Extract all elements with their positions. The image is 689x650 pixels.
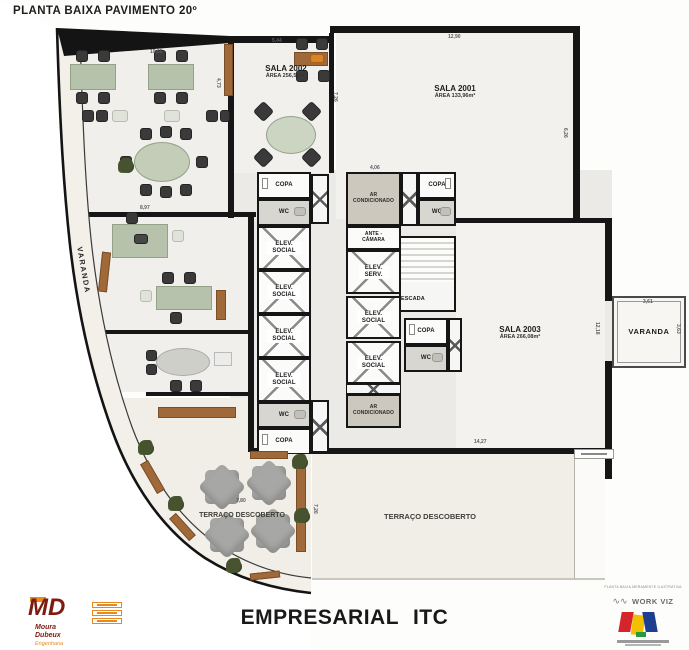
contact-line <box>92 610 122 616</box>
chair <box>316 38 328 50</box>
room-name: SALA 2003 <box>455 325 585 334</box>
plant <box>168 496 183 511</box>
table <box>156 348 210 376</box>
bench <box>250 451 288 459</box>
room-label: AR CONDICIONADO <box>351 405 397 417</box>
parasol <box>205 470 239 504</box>
room-label: ESCADA <box>401 296 454 302</box>
elevator-social-2: ELEV. SOCIAL <box>257 270 311 314</box>
chair <box>126 212 138 224</box>
plant <box>226 558 241 573</box>
plant <box>138 440 153 455</box>
desk-accessory <box>310 54 324 63</box>
room-name: SALA 2001 <box>390 84 520 93</box>
sofa <box>112 110 128 122</box>
room-wc-3: WC <box>418 199 456 226</box>
toilet <box>440 207 451 216</box>
chair <box>206 110 218 122</box>
sink <box>445 178 451 189</box>
builder-logo <box>598 612 688 638</box>
room-area: ÁREA 256,59m² <box>240 73 332 79</box>
dimension: 14,27 <box>474 439 487 445</box>
room-label: WC <box>279 412 289 419</box>
terrace-left-label: TERRAÇO DESCOBERTO <box>190 512 294 519</box>
room-label: ELEV. SOCIAL <box>267 329 301 342</box>
computer <box>134 234 148 244</box>
room-copa-3: COPA <box>418 172 456 199</box>
chair <box>140 128 152 140</box>
wall <box>64 212 256 217</box>
chair <box>98 92 110 104</box>
note-line <box>581 453 607 455</box>
elevator-social-5: ELEV. SOCIAL <box>346 296 401 339</box>
room-copa-4: COPA <box>404 318 448 345</box>
contact-line <box>92 602 122 608</box>
cabinet <box>216 290 226 320</box>
room-label: VARANDA <box>628 328 669 337</box>
logo-name-1: Moura <box>35 624 56 632</box>
logo-name-3: Engenharia <box>35 641 63 647</box>
builder-caption-line <box>617 640 669 643</box>
room-escada: ESCADA <box>399 236 456 312</box>
contact-line <box>92 618 122 624</box>
dimension: 6,26 <box>562 128 568 138</box>
room-area: ÁREA 266,08m² <box>455 334 585 340</box>
squiggle-icon: ∿∿ <box>612 596 627 606</box>
parasol <box>256 514 290 548</box>
room-label: WC <box>421 355 431 362</box>
wall <box>452 218 612 223</box>
sideboard <box>158 407 236 418</box>
dimension: 12,18 <box>594 322 600 335</box>
sala-2003-label: SALA 2003 ÁREA 266,08m² <box>455 325 585 340</box>
terrace-right-label: TERRAÇO DESCOBERTO <box>340 512 520 521</box>
elevator-social-6: ELEV. SOCIAL <box>346 341 401 384</box>
chair <box>140 290 152 302</box>
chair <box>146 350 157 361</box>
duct-shaft <box>311 174 329 224</box>
room-wc-2: WC <box>257 402 311 428</box>
dimension: 8,97 <box>140 205 150 211</box>
bench <box>250 570 281 580</box>
sink <box>262 434 268 445</box>
room-ar-condicionado-2: AR CONDICIONADO <box>346 394 401 428</box>
dimension: 5,44 <box>272 38 282 44</box>
room-label: ELEV. SOCIAL <box>267 285 301 298</box>
chair <box>98 50 110 62</box>
room-label: ELEV. SERV. <box>359 265 389 278</box>
dimension: 12,90 <box>448 34 461 40</box>
chair <box>160 126 172 138</box>
chair <box>82 110 94 122</box>
sala-2002-label: SALA 2002 ÁREA 256,59m² <box>240 64 332 79</box>
room-label: ELEV. SOCIAL <box>267 241 301 254</box>
room-wc-1: WC <box>257 199 311 226</box>
room-area: ÁREA 133,96m² <box>390 93 520 99</box>
room-name: SALA 2002 <box>240 64 332 73</box>
room-wc-4: WC <box>404 345 448 372</box>
elevator-social-4: ELEV. SOCIAL <box>257 358 311 402</box>
chair <box>180 184 192 196</box>
floor-plan-canvas: COPA WC ELEV. SOCIAL ELEV. SOCIAL ELEV. … <box>0 0 689 650</box>
chair <box>140 184 152 196</box>
room-ar-condicionado-1: AR CONDICIONADO <box>346 172 401 226</box>
sala-2001-label: SALA 2001 ÁREA 133,96m² <box>390 84 520 99</box>
toilet <box>294 207 306 216</box>
room-label: COPA <box>275 438 292 445</box>
dimension: 7,26 <box>332 92 338 102</box>
parasol <box>210 518 244 552</box>
sofa <box>164 110 180 122</box>
elevator-social-3: ELEV. SOCIAL <box>257 314 311 358</box>
chair <box>176 50 188 62</box>
dimension: 7,80 <box>236 498 246 504</box>
duct-shaft <box>401 172 418 226</box>
wall <box>329 33 334 173</box>
wall <box>573 26 580 222</box>
parasol <box>252 466 286 500</box>
elevator-servico: ELEV. SERV. <box>346 250 401 294</box>
dimension: 3,63 <box>675 324 681 334</box>
table <box>156 286 212 310</box>
credits-block: PLANTA BAIXA MERAMENTE ILUSTRATIVA ∿∿ WO… <box>598 585 688 647</box>
room-label: WC <box>279 209 289 216</box>
chair <box>172 230 184 242</box>
credits-caption: PLANTA BAIXA MERAMENTE ILUSTRATIVA <box>598 585 688 589</box>
sink <box>262 178 268 189</box>
bench <box>140 460 165 494</box>
desk <box>148 64 194 90</box>
chair <box>180 128 192 140</box>
desk <box>70 64 116 90</box>
plant <box>294 508 309 523</box>
room-label: COPA <box>275 182 292 189</box>
elevator-social-1: ELEV. SOCIAL <box>257 226 311 270</box>
chair <box>160 186 172 198</box>
chair <box>162 272 174 284</box>
sink <box>409 324 415 335</box>
chair <box>176 92 188 104</box>
logo-name-2: Dubeux <box>35 632 61 640</box>
workviz-logo: ∿∿ WORK VIZ <box>598 591 688 609</box>
dimension: 4,73 <box>215 78 221 88</box>
chair <box>96 110 108 122</box>
wall <box>330 26 579 33</box>
builder-logo-green <box>636 632 646 637</box>
duct-shaft <box>346 384 401 394</box>
room-label: ELEV. SOCIAL <box>357 356 391 369</box>
toilet <box>294 410 306 419</box>
dimension: 7,26 <box>312 504 318 514</box>
builder-caption-line <box>625 644 661 646</box>
chair <box>190 380 202 392</box>
moura-dubeux-logo: MD Moura Dubeux Engenharia <box>28 594 178 648</box>
wall <box>605 361 612 479</box>
builder-logo-blue <box>642 612 658 632</box>
chair <box>76 92 88 104</box>
room-label: ELEV. SOCIAL <box>357 311 391 324</box>
dimension: 10,65 <box>150 49 163 55</box>
chair <box>184 272 196 284</box>
toilet <box>432 353 443 362</box>
chair <box>296 38 308 50</box>
chair <box>196 156 208 168</box>
stair-treads <box>401 238 454 282</box>
meeting-table <box>134 142 190 182</box>
room-label: COPA <box>417 328 434 335</box>
room-label: ELEV. SOCIAL <box>267 373 301 386</box>
chair <box>170 380 182 392</box>
logo-initials: MD <box>28 596 65 620</box>
workviz-name: WORK VIZ <box>632 597 674 606</box>
chair <box>154 92 166 104</box>
room-copa-1: COPA <box>257 172 311 199</box>
terrace-right-strip <box>574 454 605 580</box>
note-box <box>574 449 614 459</box>
chair <box>170 312 182 324</box>
wall <box>104 330 254 334</box>
side-table <box>214 352 232 366</box>
room-label: COPA <box>428 182 445 189</box>
chair <box>146 364 157 375</box>
page-title: PLANTA BAIXA PAVIMENTO 20º <box>13 5 197 17</box>
cabinet <box>224 44 233 96</box>
room-label: AR CONDICIONADO <box>351 193 397 205</box>
dimension: 3,61 <box>643 299 653 305</box>
room-ante-camara: ANTE - CÂMARA <box>346 226 401 250</box>
room-label: ANTE - CÂMARA <box>355 232 393 244</box>
dimension: 4,06 <box>370 165 380 171</box>
chair <box>220 110 230 122</box>
chair <box>76 50 88 62</box>
wall <box>605 218 612 301</box>
duct-shaft <box>311 400 329 453</box>
wall <box>146 392 254 396</box>
